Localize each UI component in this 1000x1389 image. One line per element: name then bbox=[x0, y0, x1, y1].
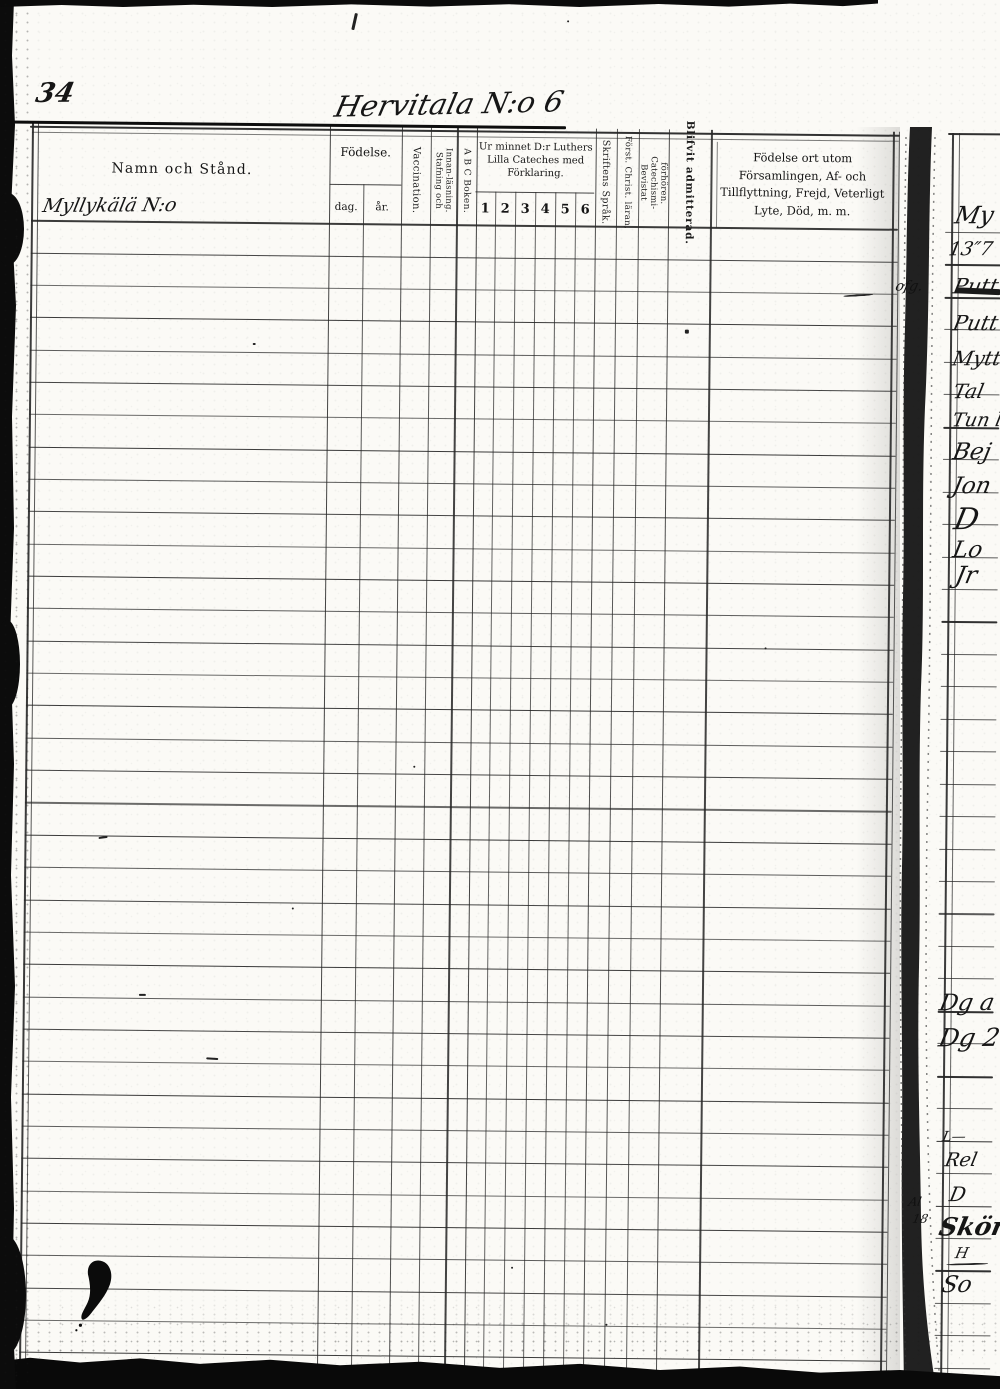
adjacent-row-rule bbox=[936, 1173, 992, 1175]
gutter-note: 18 bbox=[911, 1213, 929, 1225]
adjacent-row-rule bbox=[941, 654, 997, 656]
adjacent-row-rule bbox=[940, 784, 996, 786]
handwriting-fragment: Lo bbox=[951, 539, 985, 562]
handwriting-fragment: Tal bbox=[951, 381, 985, 401]
handwriting-fragment: Skör bbox=[937, 1214, 1000, 1239]
adjacent-row-rule bbox=[939, 881, 995, 883]
handwriting-fragment: Putt bbox=[951, 313, 1000, 334]
adjacent-page-fragment: My13″7PuttPuttMyttTalTun lBejJonDLoJrDg … bbox=[0, 0, 1000, 1389]
adjacent-row-rule bbox=[942, 589, 998, 591]
gutter-note: ofg. bbox=[894, 279, 924, 293]
handwriting-fragment: Dg a bbox=[937, 992, 996, 1015]
adjacent-row-rule bbox=[939, 913, 995, 915]
adjacent-row-rule bbox=[938, 946, 994, 948]
adjacent-row-rule bbox=[935, 1303, 991, 1305]
adjacent-row-rule bbox=[945, 264, 1000, 266]
handwriting-fragment: Jon bbox=[950, 475, 993, 498]
adjacent-row-rule bbox=[940, 719, 996, 721]
handwriting-fragment: Dg 2 bbox=[937, 1025, 1000, 1050]
handwriting-fragment: Tun l bbox=[950, 411, 1000, 430]
handwriting-fragment: My bbox=[953, 203, 996, 227]
adjacent-row-rule bbox=[941, 686, 997, 688]
adjacent-row-rule bbox=[940, 816, 996, 818]
adjacent-row-rule bbox=[945, 232, 1000, 234]
adjacent-row-rule bbox=[938, 978, 994, 980]
adjacent-row-rule bbox=[937, 1108, 993, 1110]
handwriting-fragment: D bbox=[948, 1184, 968, 1204]
adjacent-row-rule bbox=[936, 1205, 992, 1207]
adjacent-row-rule bbox=[940, 751, 996, 753]
handwriting-fragment: Bej bbox=[951, 441, 994, 464]
handwriting-fragment: Rel bbox=[943, 1151, 979, 1170]
handwriting-fragment: So bbox=[940, 1274, 974, 1297]
handwriting-fragment: Jr bbox=[953, 563, 979, 587]
handwriting-fragment: Mytt bbox=[951, 348, 1000, 368]
strikethrough-squiggle bbox=[946, 1263, 988, 1266]
adjacent-row-rule bbox=[935, 1335, 991, 1337]
handwriting-fragment: 13″7 bbox=[947, 240, 994, 259]
handwriting-fragment: H bbox=[954, 1246, 970, 1261]
adjacent-row-rule bbox=[937, 1076, 993, 1078]
adjacent-row-rule bbox=[941, 621, 997, 623]
handwriting-fragment: L— bbox=[941, 1130, 967, 1144]
adjacent-row-rule bbox=[934, 1368, 990, 1370]
adjacent-page-top-border bbox=[948, 133, 1000, 135]
scanned-parish-register-page: 34 Hervitala N:o 6 Namn och Stånd. Mylly… bbox=[0, 0, 1000, 1389]
handwriting-fragment: D bbox=[951, 505, 981, 535]
adjacent-row-rule bbox=[939, 848, 995, 850]
gutter-note: Al bbox=[908, 1196, 923, 1208]
